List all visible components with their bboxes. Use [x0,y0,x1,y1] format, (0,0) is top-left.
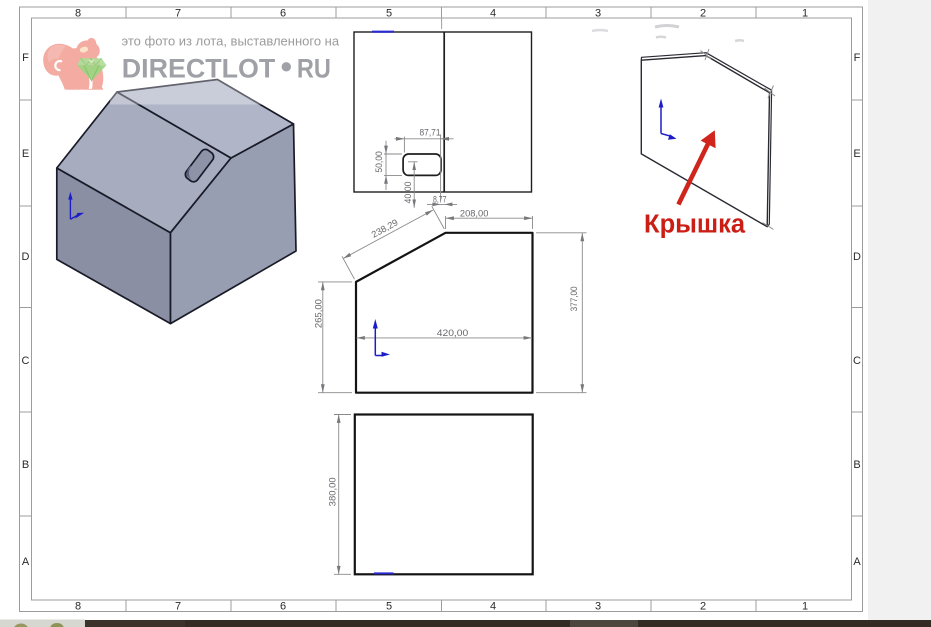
svg-text:7: 7 [175,601,181,613]
svg-text:Крышка: Крышка [644,211,746,239]
svg-text:4: 4 [490,601,496,613]
svg-text:3: 3 [595,601,601,613]
svg-text:6: 6 [280,8,286,20]
svg-text:C: C [22,355,30,367]
svg-text:8: 8 [75,601,81,613]
svg-text:40,00: 40,00 [403,182,413,204]
svg-text:380,00: 380,00 [328,477,338,506]
svg-text:87,71: 87,71 [420,128,441,138]
svg-text:A: A [853,556,861,568]
svg-text:1: 1 [802,601,808,613]
svg-text:1: 1 [802,8,808,20]
svg-text:D: D [22,251,30,263]
svg-text:B: B [22,459,29,471]
svg-text:DIRECTLOT: DIRECTLOT [122,53,276,83]
svg-text:F: F [854,52,861,64]
svg-text:208,00: 208,00 [460,209,489,219]
svg-text:F: F [22,52,29,64]
svg-text:8,77: 8,77 [433,195,447,205]
svg-text:E: E [853,148,860,160]
svg-text:420,00: 420,00 [437,328,469,338]
svg-text:8: 8 [75,8,81,20]
svg-text:A: A [22,556,30,568]
svg-text:3: 3 [595,8,601,20]
svg-text:это фото из лота, выставленног: это фото из лота, выставленного на [122,33,340,48]
svg-text:6: 6 [280,601,286,613]
svg-text:377,00: 377,00 [569,286,579,311]
svg-text:4: 4 [490,8,496,20]
svg-text:RU: RU [297,53,331,83]
svg-text:2: 2 [700,8,706,20]
svg-text:C: C [853,355,861,367]
svg-text:5: 5 [386,601,392,613]
svg-text:B: B [853,459,860,471]
svg-text:265,00: 265,00 [313,299,323,328]
svg-text:50,00: 50,00 [374,151,384,173]
svg-text:2: 2 [700,601,706,613]
svg-text:E: E [22,148,29,160]
svg-text:5: 5 [386,8,392,20]
svg-text:D: D [853,251,861,263]
svg-text:7: 7 [175,8,181,20]
